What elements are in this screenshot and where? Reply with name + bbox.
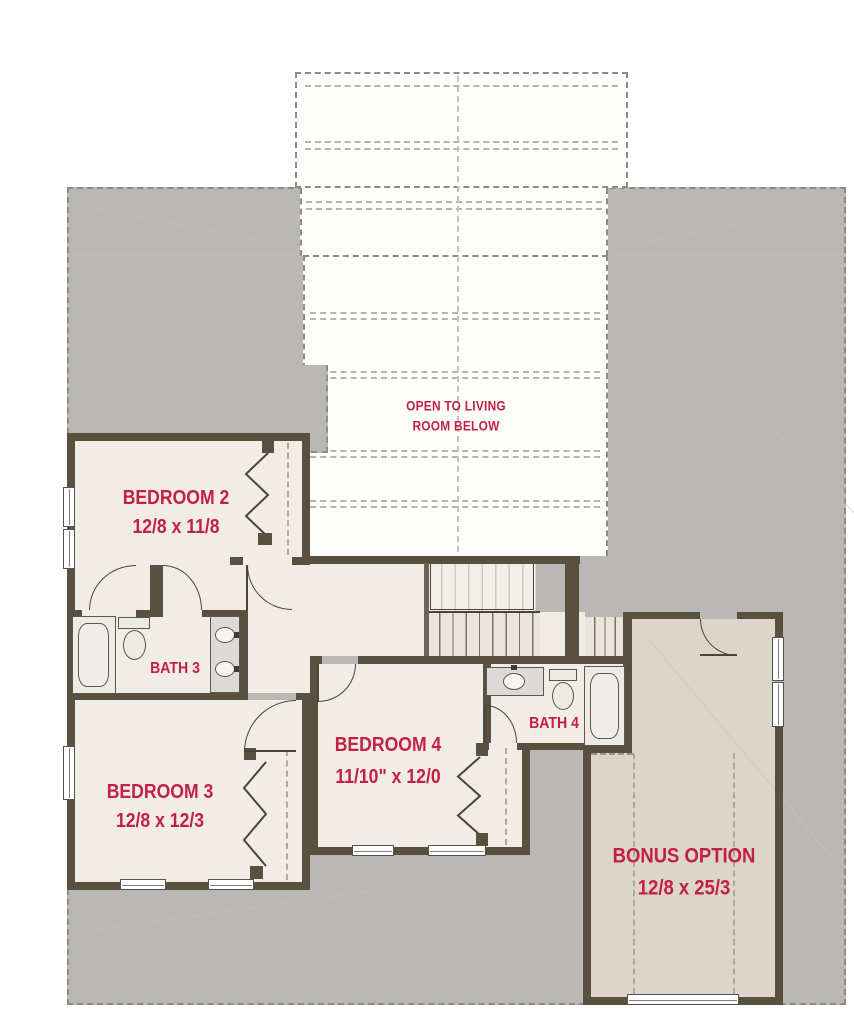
wall (230, 557, 243, 565)
roof-ridge-line (610, 254, 844, 255)
bath3-label: BATH 3 (150, 661, 200, 677)
bonus-label: BONUS OPTION (613, 846, 756, 867)
wall (150, 565, 163, 617)
wall (583, 745, 632, 753)
wall (775, 612, 783, 637)
dormer-outline (295, 72, 628, 188)
closet-rod-dashed-line (287, 443, 289, 555)
toilet-icon (549, 669, 577, 681)
toilet-icon (118, 617, 150, 629)
wall (302, 433, 310, 565)
wall (302, 693, 310, 890)
wall (583, 745, 591, 1005)
wall (775, 727, 783, 1005)
hall-floor (310, 563, 424, 656)
window (208, 879, 254, 890)
bath4-label: BATH 4 (529, 716, 579, 732)
closet-rod-dashed-line (286, 750, 288, 880)
stairs-to-bonus (585, 617, 623, 660)
bifold-door-icon (242, 762, 268, 866)
window (428, 845, 486, 856)
bathtub-basin (590, 673, 619, 739)
dashed-line (306, 201, 602, 203)
faucet-icon (234, 632, 239, 638)
wall (476, 743, 488, 756)
hall-floor (248, 610, 310, 693)
window (627, 994, 739, 1005)
dashed-line (633, 753, 635, 994)
window (352, 845, 394, 856)
dashed-line (310, 312, 600, 314)
dashed-line (310, 506, 600, 508)
toilet-bowl (552, 682, 574, 710)
wall (310, 556, 580, 564)
floor-plan: OPEN TO LIVING ROOM BELOW BEDROOM 2 12/8… (0, 0, 854, 1024)
wall (262, 441, 274, 453)
wall (358, 656, 632, 664)
window (63, 487, 75, 527)
hall-floor (302, 565, 310, 656)
sink-icon (503, 673, 525, 690)
bedroom4-label: BEDROOM 4 (335, 735, 442, 755)
bedroom3-dimensions: 12/8 x 12/3 (116, 811, 204, 831)
dashed-line (305, 85, 618, 87)
window (63, 529, 75, 569)
dashed-line (310, 456, 600, 458)
door-leaf (246, 565, 248, 610)
bonus-floor (591, 745, 632, 997)
wall (522, 743, 530, 855)
dashed-line (310, 318, 600, 320)
bonus-dimensions: 12/8 x 25/3 (638, 878, 730, 899)
window (63, 746, 75, 800)
wall (591, 997, 629, 1005)
wall (565, 556, 579, 663)
window (120, 879, 166, 890)
dormer-base (300, 188, 608, 256)
door-leaf (244, 750, 296, 752)
wall (240, 610, 248, 700)
bedroom2-label: BEDROOM 2 (123, 488, 230, 508)
door-leaf (700, 654, 737, 656)
bedroom2-dimensions: 12/8 x 11/8 (132, 517, 219, 537)
open-to-below-label: ROOM BELOW (412, 419, 499, 433)
dashed-line (306, 208, 602, 210)
roof-ridge-line (72, 254, 298, 255)
wall (632, 612, 700, 619)
wall (67, 433, 310, 441)
wall (250, 866, 263, 879)
dashed-line (457, 76, 459, 552)
wall (476, 833, 488, 846)
bedroom3-label: BEDROOM 3 (107, 782, 214, 802)
closet-rod-dashed-line (505, 748, 507, 845)
dashed-line (310, 450, 600, 452)
sink-icon (215, 661, 235, 677)
door-leaf (317, 664, 319, 702)
sink-icon (215, 627, 235, 643)
wall (292, 557, 310, 565)
bifold-door-icon (244, 453, 270, 537)
dashed-line (733, 753, 735, 994)
bathtub-basin (78, 623, 109, 687)
window (772, 637, 784, 681)
dashed-line (310, 500, 600, 502)
window (772, 682, 784, 727)
faucet-icon (511, 665, 517, 670)
door-leaf (484, 705, 486, 743)
wall (67, 693, 244, 700)
stair-railing (430, 564, 534, 610)
faucet-icon (234, 666, 239, 672)
dashed-line (310, 377, 600, 379)
dashed-line (305, 141, 618, 143)
dashed-line (310, 371, 600, 373)
bifold-door-icon (456, 757, 482, 835)
wall (737, 997, 783, 1005)
stairs-lower-flight (427, 613, 540, 660)
wall (310, 847, 530, 855)
toilet-bowl (123, 630, 146, 660)
wall (67, 882, 310, 890)
wall (424, 563, 429, 656)
dashed-line (305, 148, 618, 150)
dashed-line (591, 753, 633, 755)
bonus-floor (632, 619, 775, 997)
bedroom4-dimensions: 11/10" x 12/0 (335, 767, 440, 787)
wall (258, 533, 272, 545)
open-to-below-label: OPEN TO LIVING (406, 399, 506, 413)
